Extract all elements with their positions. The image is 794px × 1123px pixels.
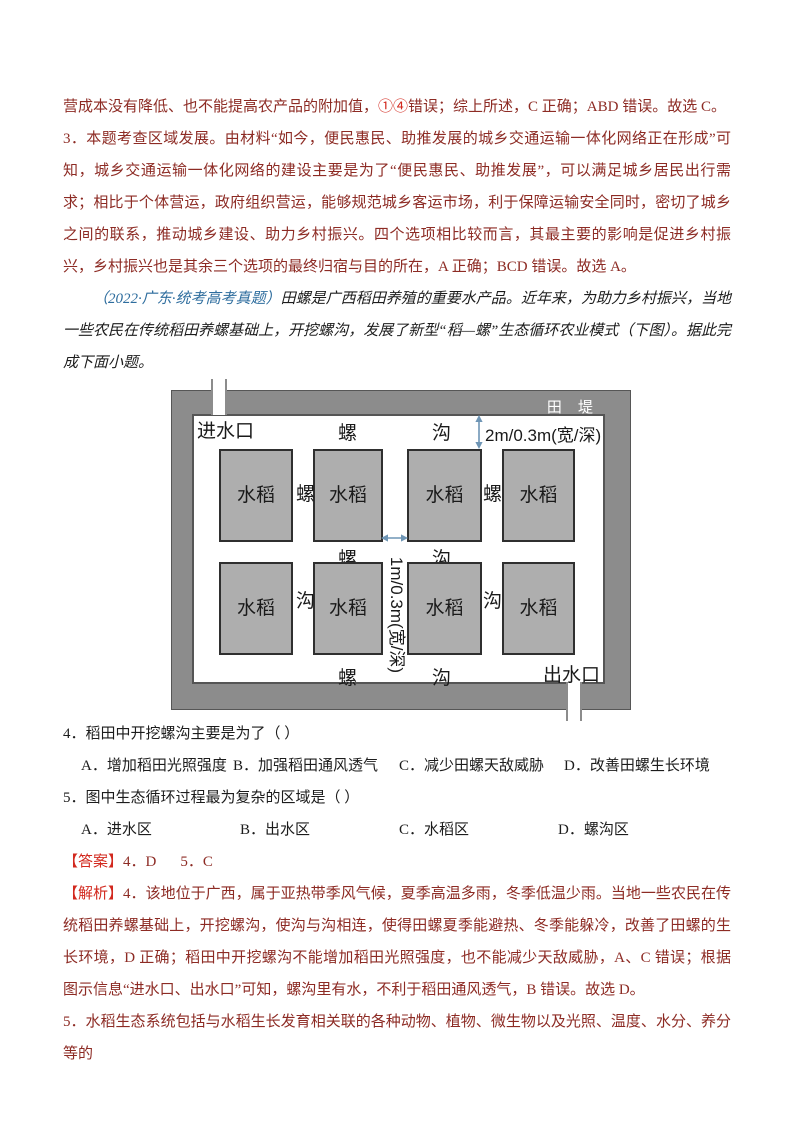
snail-label: 螺 (338, 418, 357, 450)
snail-label: 螺 (483, 479, 502, 511)
q5-option-a: A．进水区 (81, 814, 240, 846)
ditch-label: 沟 (296, 586, 315, 618)
snail-label: 螺 (338, 663, 357, 695)
rice-plot-label: 水稻 (425, 480, 463, 512)
answer-q5: 5．C (180, 854, 213, 870)
rice-plot: 水稻 (502, 562, 575, 655)
rice-plot-label: 水稻 (519, 593, 557, 625)
vertical-dimension-arrow (473, 415, 485, 449)
material-paragraph: （2022·广东·统考高考真题）田螺是广西稻田养殖的重要水产品。近年来，为助力乡… (63, 283, 731, 379)
answer-line: 【答案】4．D5．C (63, 846, 731, 878)
rice-plot: 水稻 (313, 449, 383, 542)
analysis-q3-paragraph: 3．本题考查区域发展。由材料“如今，便民惠民、助推发展的城乡交通运输一体化网络正… (63, 123, 731, 283)
rice-plot-label: 水稻 (519, 480, 557, 512)
rice-plot: 水稻 (407, 449, 482, 542)
rice-plot: 水稻 (502, 449, 575, 542)
analysis-continued-text-end: 错误；综上所述，C 正确；ABD 错误。故选 C。 (408, 99, 726, 115)
rice-plot: 水稻 (407, 562, 482, 655)
q5-option-d: D．螺沟区 (558, 814, 629, 846)
paddy-field-diagram: 田 堤 进水口 螺 沟 2m/0.3m(宽/深) 水稻 水稻 水稻 水稻 螺 螺… (172, 391, 630, 709)
analysis-label: 【解析】 (63, 886, 123, 902)
q4-option-d: D．改善田螺生长环境 (564, 750, 710, 782)
answer-q4: 4．D (123, 854, 156, 870)
exam-source-label: （2022·广东·统考高考真题） (93, 291, 281, 307)
q5-option-c: C．水稻区 (399, 814, 558, 846)
analysis-q4-text: 4．该地位于广西，属于亚热带季风气候，夏季高温多雨，冬季低温少雨。当地一些农民在… (63, 886, 731, 998)
q4-option-b: B．加强稻田通风透气 (233, 750, 399, 782)
analysis-continued-text: 营成本没有降低、也不能提高农产品的附加值， (63, 99, 378, 115)
rice-plot-label: 水稻 (237, 593, 275, 625)
answer-label: 【答案】 (63, 854, 123, 870)
question-5-stem: 5．图中生态循环过程最为复杂的区域是（ ） (63, 782, 731, 814)
snail-label: 螺 (296, 479, 315, 511)
question-4-stem: 4．稻田中开挖螺沟主要是为了（ ） (63, 718, 731, 750)
exam-page: 营成本没有降低、也不能提高农产品的附加值，①④错误；综上所述，C 正确；ABD … (0, 0, 794, 1070)
q4-option-c: C．减少田螺天敌威胁 (399, 750, 564, 782)
outlet-label: 出水口 (543, 660, 600, 692)
question-4-options: A．增加稻田光照强度 B．加强稻田通风透气 C．减少田螺天敌威胁 D．改善田螺生… (63, 750, 731, 782)
circled-numbers: ①④ (378, 99, 408, 115)
ditch-label: 沟 (432, 418, 451, 450)
question-5-options: A．进水区 B．出水区 C．水稻区 D．螺沟区 (63, 814, 731, 846)
rice-plot: 水稻 (219, 562, 293, 655)
horizontal-dimension-arrow (381, 532, 408, 544)
q5-option-b: B．出水区 (240, 814, 399, 846)
ditch-label: 沟 (432, 663, 451, 695)
rice-plot-label: 水稻 (329, 480, 367, 512)
inlet-channel (211, 379, 227, 415)
analysis-q4-paragraph: 【解析】4．该地位于广西，属于亚热带季风气候，夏季高温多雨，冬季低温少雨。当地一… (63, 878, 731, 1006)
rice-plot: 水稻 (313, 562, 383, 655)
analysis-continued-paragraph: 营成本没有降低、也不能提高农产品的附加值，①④错误；综上所述，C 正确；ABD … (63, 91, 731, 123)
rice-plot-label: 水稻 (329, 593, 367, 625)
q4-option-a: A．增加稻田光照强度 (81, 750, 233, 782)
inlet-label: 进水口 (197, 416, 254, 448)
ditch-label: 沟 (483, 586, 502, 618)
rice-plot-label: 水稻 (237, 480, 275, 512)
ditch-width-depth-dimension: 2m/0.3m(宽/深) (485, 420, 601, 452)
rice-plot-label: 水稻 (425, 593, 463, 625)
analysis-q5-paragraph: 5．水稻生态系统包括与水稻生长发育相关联的各种动物、植物、微生物以及光照、温度、… (63, 1006, 731, 1070)
rice-plot: 水稻 (219, 449, 293, 542)
